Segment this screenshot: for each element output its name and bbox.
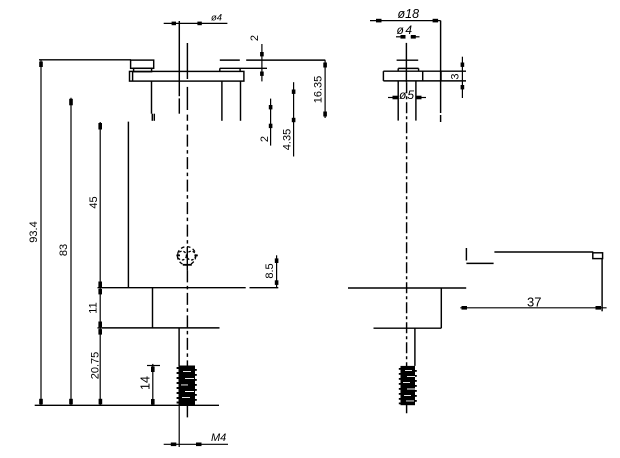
- svg-text:2: 2: [259, 136, 271, 142]
- svg-text:ø4: ø4: [211, 13, 222, 24]
- svg-text:M4: M4: [211, 432, 226, 444]
- svg-text:20.75: 20.75: [89, 352, 101, 380]
- svg-text:11: 11: [87, 302, 99, 313]
- svg-text:93.4: 93.4: [28, 221, 40, 242]
- svg-text:14: 14: [139, 376, 153, 390]
- svg-text:ø5: ø5: [399, 88, 415, 102]
- svg-text:4.35: 4.35: [282, 129, 294, 150]
- svg-text:45: 45: [88, 196, 100, 208]
- svg-text:37: 37: [527, 295, 541, 310]
- svg-text:8.5: 8.5: [264, 263, 276, 278]
- svg-text:16.35: 16.35: [313, 76, 325, 104]
- svg-text:2: 2: [249, 35, 261, 41]
- svg-text:ø18: ø18: [398, 7, 420, 21]
- svg-text:83: 83: [58, 244, 70, 256]
- svg-text:3: 3: [450, 73, 462, 79]
- svg-text:ø4: ø4: [397, 23, 414, 37]
